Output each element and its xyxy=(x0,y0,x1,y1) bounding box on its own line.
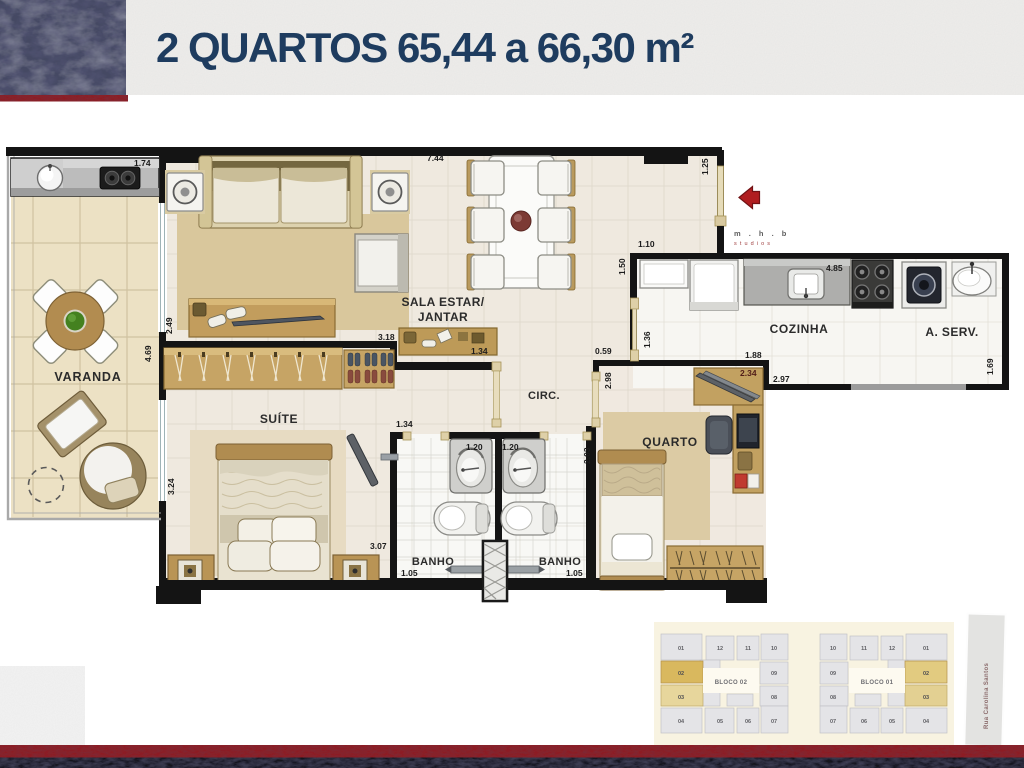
svg-text:06: 06 xyxy=(745,719,751,725)
svg-text:SUÍTE: SUÍTE xyxy=(260,411,298,426)
svg-text:VARANDA: VARANDA xyxy=(54,370,121,384)
svg-text:1.20: 1.20 xyxy=(502,442,519,452)
svg-text:06: 06 xyxy=(861,719,867,725)
svg-text:01: 01 xyxy=(678,646,684,652)
svg-text:3.18: 3.18 xyxy=(378,332,395,342)
svg-text:03: 03 xyxy=(678,695,684,701)
svg-text:11: 11 xyxy=(745,646,751,652)
svg-text:JANTAR: JANTAR xyxy=(418,310,468,324)
svg-text:1.50: 1.50 xyxy=(617,258,627,275)
svg-text:01: 01 xyxy=(923,646,929,652)
svg-text:02: 02 xyxy=(923,671,929,677)
svg-text:SALA ESTAR/: SALA ESTAR/ xyxy=(401,295,484,309)
svg-text:QUARTO: QUARTO xyxy=(642,435,697,449)
svg-text:1.34: 1.34 xyxy=(471,346,488,356)
svg-text:03: 03 xyxy=(923,695,929,701)
svg-text:BLOCO 01: BLOCO 01 xyxy=(861,680,894,686)
svg-text:10: 10 xyxy=(771,646,777,652)
svg-text:11: 11 xyxy=(861,646,867,652)
svg-text:2.03: 2.03 xyxy=(582,447,592,464)
svg-text:4.69: 4.69 xyxy=(143,345,153,362)
svg-text:1.74: 1.74 xyxy=(134,158,151,168)
svg-text:07: 07 xyxy=(771,719,777,725)
svg-text:05: 05 xyxy=(717,719,723,725)
svg-text:12: 12 xyxy=(889,646,895,652)
svg-text:09: 09 xyxy=(771,671,777,677)
svg-text:1.25: 1.25 xyxy=(700,158,710,175)
svg-text:09: 09 xyxy=(830,671,836,677)
svg-text:3.24: 3.24 xyxy=(166,478,176,495)
svg-text:1.05: 1.05 xyxy=(401,568,418,578)
svg-text:BANHO: BANHO xyxy=(412,556,454,568)
svg-text:04: 04 xyxy=(923,719,930,725)
svg-text:3.07: 3.07 xyxy=(370,541,387,551)
svg-text:02: 02 xyxy=(678,671,684,677)
svg-text:12: 12 xyxy=(717,646,723,652)
svg-text:BLOCO 02: BLOCO 02 xyxy=(715,680,748,686)
svg-text:2.34: 2.34 xyxy=(740,368,757,378)
svg-text:1.20: 1.20 xyxy=(466,442,483,452)
svg-text:1.69: 1.69 xyxy=(985,358,995,375)
svg-text:2.98: 2.98 xyxy=(603,372,613,389)
svg-text:07: 07 xyxy=(830,719,836,725)
svg-text:Rua Carolina Santos: Rua Carolina Santos xyxy=(984,662,990,729)
svg-text:1.36: 1.36 xyxy=(642,331,652,348)
svg-text:04: 04 xyxy=(678,719,685,725)
svg-text:2.97: 2.97 xyxy=(773,374,790,384)
svg-text:BANHO: BANHO xyxy=(539,556,581,568)
svg-text:2 QUARTOS 65,44 a 66,30 m²: 2 QUARTOS 65,44 a 66,30 m² xyxy=(156,24,694,71)
svg-text:A. SERV.: A. SERV. xyxy=(925,325,978,339)
svg-text:10: 10 xyxy=(830,646,836,652)
svg-text:m . h . b: m . h . b xyxy=(734,229,789,238)
svg-text:1.05: 1.05 xyxy=(566,568,583,578)
svg-text:08: 08 xyxy=(771,695,777,701)
svg-text:7.44: 7.44 xyxy=(427,153,444,163)
svg-text:1.34: 1.34 xyxy=(396,419,413,429)
svg-text:08: 08 xyxy=(830,695,836,701)
svg-text:1.88: 1.88 xyxy=(745,350,762,360)
svg-text:2.49: 2.49 xyxy=(164,317,174,334)
svg-text:05: 05 xyxy=(889,719,895,725)
svg-text:studios: studios xyxy=(734,241,773,247)
svg-text:4.85: 4.85 xyxy=(826,263,843,273)
svg-text:1.10: 1.10 xyxy=(638,239,655,249)
svg-text:COZINHA: COZINHA xyxy=(770,322,829,336)
svg-text:CIRC.: CIRC. xyxy=(528,390,560,402)
svg-text:0.59: 0.59 xyxy=(595,346,612,356)
